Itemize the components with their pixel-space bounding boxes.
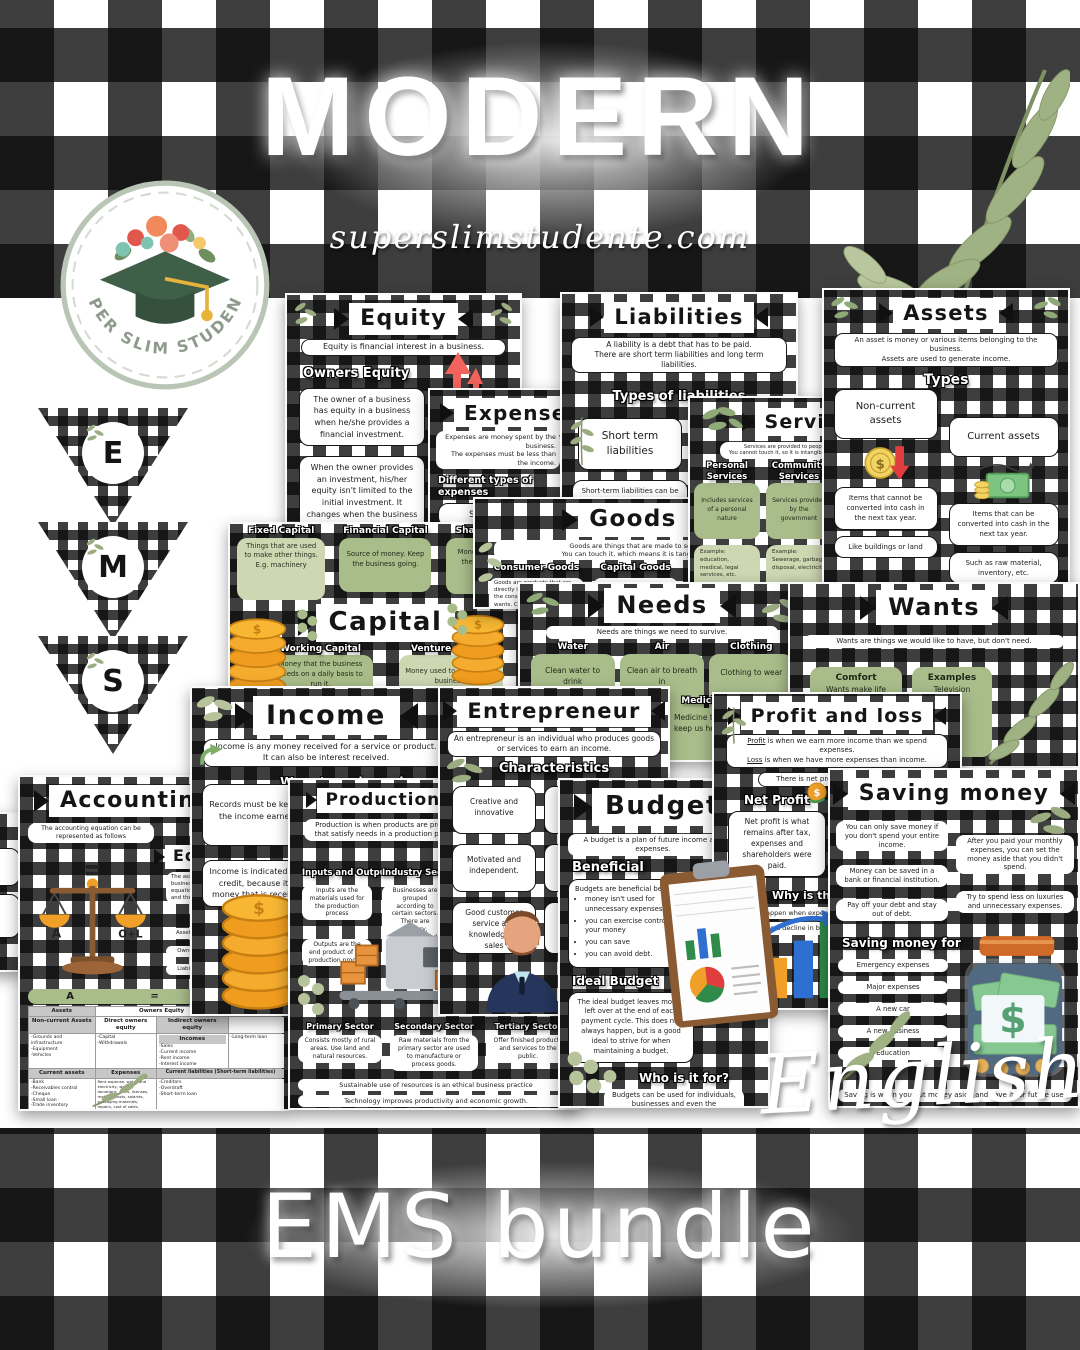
loss-word: Loss: [747, 756, 762, 764]
services-subtitle-line: Services are provided to people.: [724, 444, 828, 451]
loss-rest: is when we have more expenses than incom…: [762, 756, 927, 764]
needs-card-heading: Air: [620, 642, 704, 654]
poster-title: Profit and loss: [741, 702, 933, 730]
capital-card-heading: Financial Capital: [339, 526, 431, 538]
table-subheader: Non-current Assets: [29, 1017, 95, 1033]
expenses-subtitle-line: The expenses must be less than the incom…: [440, 450, 556, 467]
production-card: Inputs are the materials used for the pr…: [302, 885, 372, 920]
characteristic-card: Creative and innovative: [452, 786, 536, 834]
needs-card-text: Clean air to breath in: [627, 666, 697, 686]
assets-subtitle-line: Assets are used to generate income.: [841, 355, 1051, 364]
expenses-section-heading: Different types of expenses: [438, 475, 562, 500]
profit-loss-subtitle: Profit is when we earn more income than …: [726, 734, 947, 768]
leaf-sprig-icon: [289, 299, 323, 333]
banner-arrow-icon: [651, 701, 665, 721]
goods-column-heading: Capital Goods: [593, 563, 678, 575]
production-footer: Sustainable use of resources is an ethic…: [298, 1079, 574, 1091]
svg-text:$: $: [875, 457, 884, 472]
production-footer: Technology improves productivity and eco…: [298, 1095, 574, 1107]
table-cell: -Bank -Receivables control -Cheque -Smal…: [29, 1079, 95, 1111]
coin-dollar-icon: $: [806, 782, 828, 804]
banner-arrow-icon: [400, 703, 418, 729]
cash-notes-icon: [973, 459, 1035, 501]
leaf-sprig-icon: [80, 648, 110, 678]
assets-subtitle: An asset is money or various items belon…: [834, 333, 1058, 367]
banner-arrow-icon: [754, 307, 768, 327]
wants-banner: Wants: [790, 590, 1078, 625]
services-column: Personal Services Includes services of a…: [694, 461, 760, 586]
poster-title: Income: [253, 696, 400, 735]
income-subtitle-line: Income is any money received for a servi…: [210, 742, 443, 753]
saving-section-heading: Saving money for: [842, 936, 961, 952]
poster-title: Assets: [893, 298, 1000, 329]
saving-card: You can only save money if you don't spe…: [836, 821, 948, 851]
brand-logo-badge: SUPER SLIM STUDENTE: [60, 180, 270, 390]
banner-arrow-icon: [720, 594, 736, 618]
poster-assets: Assets An asset is money or various item…: [822, 288, 1070, 585]
needs-card-heading: Clothing: [709, 642, 793, 654]
assets-columns: Non-current assets $ Items that cannot b…: [824, 389, 1068, 584]
sector-card: Consists mostly of rural areas. Use land…: [298, 1035, 382, 1062]
wants-card-heading: Comfort: [835, 673, 876, 683]
expenses-banner: Expenses: [430, 398, 562, 427]
leaf-sprig-icon: [90, 1067, 150, 1111]
poster-title: Wants: [876, 590, 992, 625]
leaf-sprig-icon: [562, 1044, 626, 1104]
income-subtitle: Income is any money received for a servi…: [203, 739, 450, 767]
poster-title: Liabilities: [604, 302, 754, 333]
needs-card-text: Clean water to drink: [545, 666, 600, 686]
expenses-subtitle-line: Expenses are money spent by the business…: [440, 433, 556, 450]
profit-line: Profit is when we earn more income than …: [733, 737, 940, 756]
entrepreneur-banner: Entrepreneur: [440, 696, 668, 727]
sector-column: Primary Sector Consists mostly of rural …: [298, 1022, 382, 1074]
asset-desc-card: Items that can be converted into cash in…: [949, 503, 1059, 545]
eucalyptus-leaf-icon: [292, 606, 326, 646]
leaf-sprig-icon: [716, 704, 752, 746]
banner-arrow-icon: [334, 308, 349, 330]
table-cell: -Creditors -Overdraft -Short-term loan: [157, 1079, 284, 1111]
incomes-list: -Sales -Current income -Rent income -Int…: [159, 1044, 226, 1067]
leaf-sprig-icon: [194, 690, 238, 730]
leaf-sprig-icon: [564, 414, 600, 466]
liabilities-subtitle-line: A liability is a debt that has to be pai…: [578, 340, 779, 350]
svg-text:$: $: [253, 621, 262, 636]
poster-title: Capital: [316, 604, 456, 642]
leaf-sprig-icon: [524, 588, 564, 622]
leaf-branch-icon: [830, 40, 1070, 320]
banner-arrow-icon: [933, 707, 946, 725]
leaf-sprig-icon: [475, 537, 505, 597]
table-cell: Incomes-Sales -Current income -Rent inco…: [157, 1034, 228, 1068]
assets-section-heading: Types: [824, 371, 1068, 389]
sector-column: Secondary Sector Raw materials from the …: [390, 1022, 478, 1074]
services-example: Example: education, medical, legal servi…: [694, 545, 760, 586]
banner-arrow-icon: [574, 794, 592, 820]
scale-label: A: [52, 926, 62, 940]
saving-card: Money can be saved in a bank or financia…: [836, 865, 948, 887]
leaf-branch-icon: [980, 644, 1080, 768]
equity-card: The owner of a business has equity in a …: [299, 388, 425, 446]
expenses-subtitle: Expenses are money spent by the business…: [436, 431, 560, 469]
language-label: English: [758, 1022, 1080, 1134]
eq-cell: =: [150, 990, 158, 1003]
coin-stack-icon: $: [220, 882, 298, 1014]
poster-title: Expenses: [454, 398, 564, 427]
asset-type-card: Current assets: [949, 417, 1059, 457]
services-subtitle-line: You cannot touch it, so it is intangible…: [724, 450, 828, 457]
leaf-sprig-icon: [698, 400, 750, 444]
capital-card: Source of money. Keep the business going…: [339, 538, 431, 592]
eq-cell: A: [66, 990, 74, 1003]
leaf-sprig-icon: [1028, 292, 1066, 328]
table-cell: -Capital -Withdrawals: [96, 1034, 156, 1068]
table-subheader: Direct owners equity: [96, 1017, 156, 1033]
saving-card: Pay off your debt and stay out of debt.: [836, 899, 948, 921]
needs-card-text: Clothing to wear: [720, 668, 782, 677]
table-cell: [229, 1017, 284, 1033]
poster-title: Goods: [578, 503, 689, 537]
clipboard-charts-icon: [660, 858, 778, 1030]
banner-arrow-icon: [34, 790, 49, 812]
table-header: Assets: [29, 1007, 95, 1016]
liabilities-subtitle: A liability is a debt that has to be pai…: [571, 337, 786, 373]
production-column-heading: Inputs and Outputs: [302, 868, 395, 879]
loss-line: Loss is when we have more expenses than …: [733, 756, 940, 765]
equity-section-heading: Owners Equity: [303, 366, 520, 383]
table-subheader: Current liabilities (Short-term liabilit…: [157, 1069, 284, 1078]
services-desc: Includes services of a personal nature: [694, 483, 760, 539]
liabilities-subtitle-line: There are short term liabilities and lon…: [578, 350, 779, 370]
poster-services: Services Services are provided to people…: [688, 396, 838, 586]
sector-heading: Secondary Sector: [390, 1022, 478, 1032]
incomes-label: Incomes: [159, 1035, 226, 1044]
banner-arrow-icon: [590, 307, 604, 327]
banner-arrow-icon: [833, 783, 848, 805]
coin-red-arrow-icon: $: [860, 441, 912, 485]
assets-column: Non-current assets $ Items that cannot b…: [834, 389, 938, 584]
poster-title: Needs: [604, 588, 719, 623]
capital-card-heading: Fixed Capital: [237, 526, 325, 538]
bundle-title: EMS bundle: [0, 1175, 1080, 1278]
pennant-s: S: [38, 636, 188, 754]
banner-arrow-icon: [443, 701, 457, 721]
needs-card-heading: Water: [531, 642, 615, 654]
saving-goal: Emergency expenses: [838, 959, 948, 972]
banner-arrow-icon: [879, 303, 893, 323]
green-curved-arrow-icon: [198, 744, 224, 770]
poster-title: Equity: [349, 303, 458, 335]
balance-scale-icon: AO+L: [30, 865, 155, 983]
leaf-sprig-icon: [292, 970, 332, 1020]
leaf-sprig-icon: [444, 752, 488, 792]
poster-title: Entrepreneur: [457, 696, 651, 727]
wants-card-heading: Examples: [928, 673, 976, 683]
accounting-grid: Assets Owners Equity Non-current Assets …: [28, 1006, 282, 1111]
banner-arrow-icon: [588, 594, 604, 618]
sector-heading: Primary Sector: [298, 1022, 382, 1032]
banner-arrow-icon: [860, 596, 876, 620]
asset-example-card: Like buildings or land: [834, 536, 938, 558]
pennant-e: E: [38, 408, 188, 526]
entrepreneur-avatar: [482, 900, 562, 1016]
assets-column: Current assets Items that can be convert…: [949, 417, 1059, 584]
leaf-sprig-icon: [80, 534, 110, 564]
services-columns: Personal Services Includes services of a…: [690, 461, 836, 586]
sector-card: Raw materials from the primary sector ar…: [390, 1035, 478, 1070]
saving-card: Try to spend less on luxuries and unnece…: [956, 891, 1074, 913]
product-cover: MODERN superslimstudente.com: [0, 0, 1080, 1350]
svg-text:$: $: [813, 788, 820, 799]
asset-type-card: Non-current assets: [834, 389, 938, 439]
leaf-sprig-icon: [1024, 800, 1074, 844]
assets-subtitle-line: An asset is money or various items belon…: [841, 336, 1051, 355]
banner-arrow-icon: [562, 509, 578, 531]
banner-arrow-icon: [458, 308, 473, 330]
svg-text:$: $: [253, 899, 265, 918]
capital-column: Financial Capital Source of money. Keep …: [339, 526, 431, 600]
saving-goal: Major expenses: [838, 981, 948, 994]
asset-desc-card: Items that cannot be converted into cash…: [834, 487, 938, 529]
services-subtitle: Services are provided to people. You can…: [720, 442, 832, 460]
leaf-sprig-icon: [484, 299, 518, 333]
leaf-sprig-icon: [826, 292, 864, 328]
pennant-m: M: [38, 522, 188, 640]
table-cell: -Grounds and infrastructure -Equipment -…: [29, 1034, 95, 1068]
eucalyptus-leaf-icon: [442, 600, 476, 640]
characteristic-card: Motivated and independent.: [452, 844, 536, 892]
needs-subtitle: Needs are things we need to survive.: [546, 626, 779, 639]
liabilities-banner: Liabilities: [562, 302, 796, 333]
leaf-sprig-icon: [80, 420, 110, 450]
asset-example-card: Such as raw material, inventory, etc.: [949, 552, 1059, 584]
table-subheader: Indirect owners equity: [157, 1017, 228, 1033]
banner-arrow-icon: [306, 792, 317, 808]
table-subheader: Current assets: [29, 1069, 95, 1078]
services-column-heading: Personal Services: [694, 461, 760, 483]
banner-arrow-icon: [999, 303, 1013, 323]
accounting-intro: The accounting equation can be represent…: [28, 823, 154, 843]
scale-label: O+L: [118, 928, 143, 940]
banner-arrow-icon: [154, 849, 165, 865]
banner-arrow-icon: [992, 596, 1008, 620]
banner-arrow-icon: [440, 403, 454, 423]
income-subtitle-line: It can also be interest received.: [210, 753, 443, 764]
table-cell: -Long-term loan: [229, 1034, 284, 1068]
profit-rest: is when we earn more income than we spen…: [765, 737, 926, 754]
sectors-row: Primary Sector Consists mostly of rural …: [298, 1022, 574, 1074]
